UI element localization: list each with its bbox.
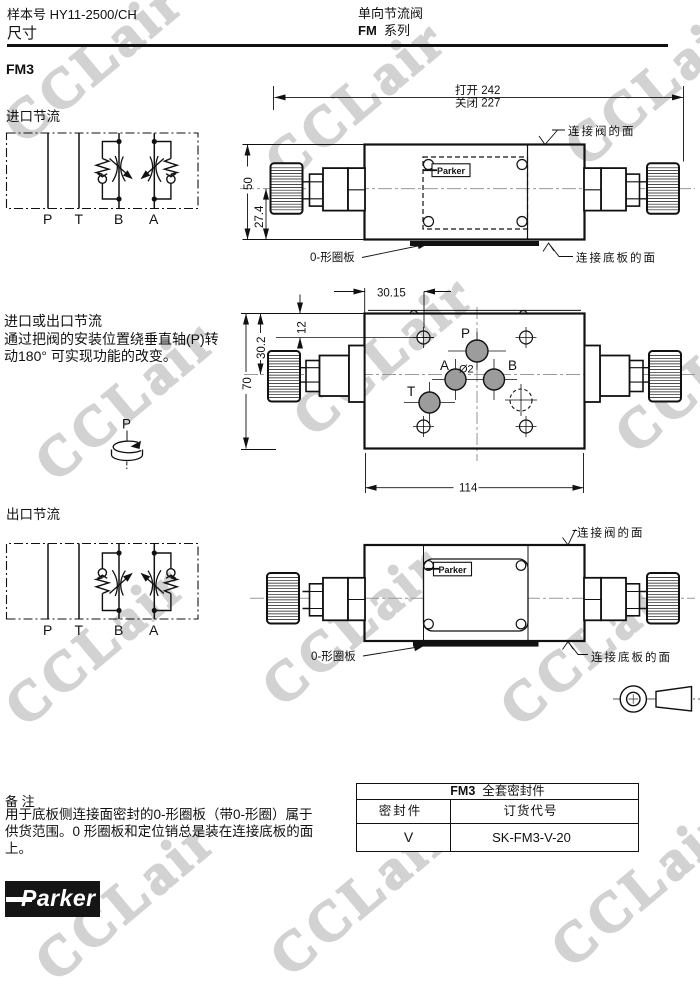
svg-text:50: 50 xyxy=(243,177,255,190)
svg-text:30.2: 30.2 xyxy=(256,337,268,359)
svg-text:12: 12 xyxy=(297,321,309,334)
svg-text:连接阀的面: 连接阀的面 xyxy=(577,526,645,540)
svg-text:B: B xyxy=(508,358,517,373)
svg-text:T: T xyxy=(407,384,415,399)
svg-text:连接阀的面: 连接阀的面 xyxy=(568,124,636,138)
svg-text:T: T xyxy=(75,622,84,638)
svg-text:0-形圈板: 0-形圈板 xyxy=(311,649,356,663)
svg-text:P: P xyxy=(122,417,131,432)
svg-text:B: B xyxy=(114,211,123,227)
svg-text:连接底板的面: 连接底板的面 xyxy=(576,251,657,265)
svg-text:A: A xyxy=(149,622,159,638)
svg-text:A: A xyxy=(440,358,449,373)
svg-text:关闭 227: 关闭 227 xyxy=(455,96,500,110)
svg-text:打开 242: 打开 242 xyxy=(455,83,500,97)
svg-text:P: P xyxy=(43,622,52,638)
svg-text:P: P xyxy=(461,326,470,341)
svg-text:Parker: Parker xyxy=(439,565,468,575)
svg-text:27.4: 27.4 xyxy=(254,205,266,228)
svg-text:Ø2: Ø2 xyxy=(459,364,474,376)
svg-text:P: P xyxy=(43,211,52,227)
svg-text:30.15: 30.15 xyxy=(377,288,406,300)
svg-text:B: B xyxy=(114,622,123,638)
svg-text:70: 70 xyxy=(242,377,254,390)
svg-text:114: 114 xyxy=(459,483,478,495)
svg-text:0-形圈板: 0-形圈板 xyxy=(310,250,355,264)
svg-text:连接底板的面: 连接底板的面 xyxy=(591,650,672,664)
svg-text:Parker: Parker xyxy=(437,166,466,176)
svg-text:T: T xyxy=(75,211,84,227)
svg-text:A: A xyxy=(149,211,159,227)
